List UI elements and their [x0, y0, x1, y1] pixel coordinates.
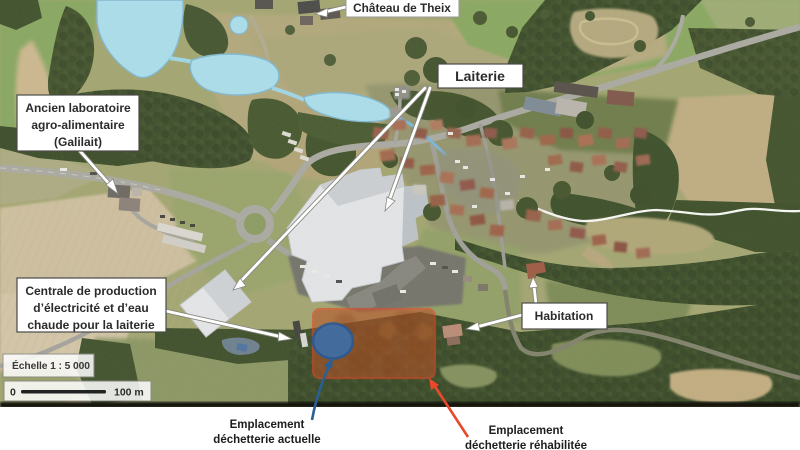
- svg-text:déchetterie actuelle: déchetterie actuelle: [213, 434, 320, 446]
- svg-text:Emplacement: Emplacement: [489, 425, 564, 437]
- svg-text:Habitation: Habitation: [535, 309, 594, 323]
- svg-text:Ancien laboratoire: Ancien laboratoire: [25, 101, 131, 115]
- svg-text:d’électricité et d’eau: d’électricité et d’eau: [33, 301, 148, 315]
- svg-text:Château de Theix: Château de Theix: [353, 1, 451, 15]
- svg-text:agro-alimentaire: agro-alimentaire: [31, 118, 125, 132]
- svg-text:0: 0: [10, 387, 16, 399]
- svg-text:déchetterie réhabilitée: déchetterie réhabilitée: [465, 440, 587, 450]
- svg-text:Emplacement: Emplacement: [230, 419, 305, 431]
- svg-text:Laiterie: Laiterie: [455, 68, 505, 84]
- svg-text:Échelle 1 : 5 000: Échelle 1 : 5 000: [12, 359, 90, 372]
- svg-text:(Galilait): (Galilait): [54, 135, 102, 149]
- svg-text:100 m: 100 m: [114, 387, 144, 399]
- svg-text:Centrale de production: Centrale de production: [25, 284, 156, 298]
- svg-text:chaude pour la laiterie: chaude pour la laiterie: [27, 318, 155, 332]
